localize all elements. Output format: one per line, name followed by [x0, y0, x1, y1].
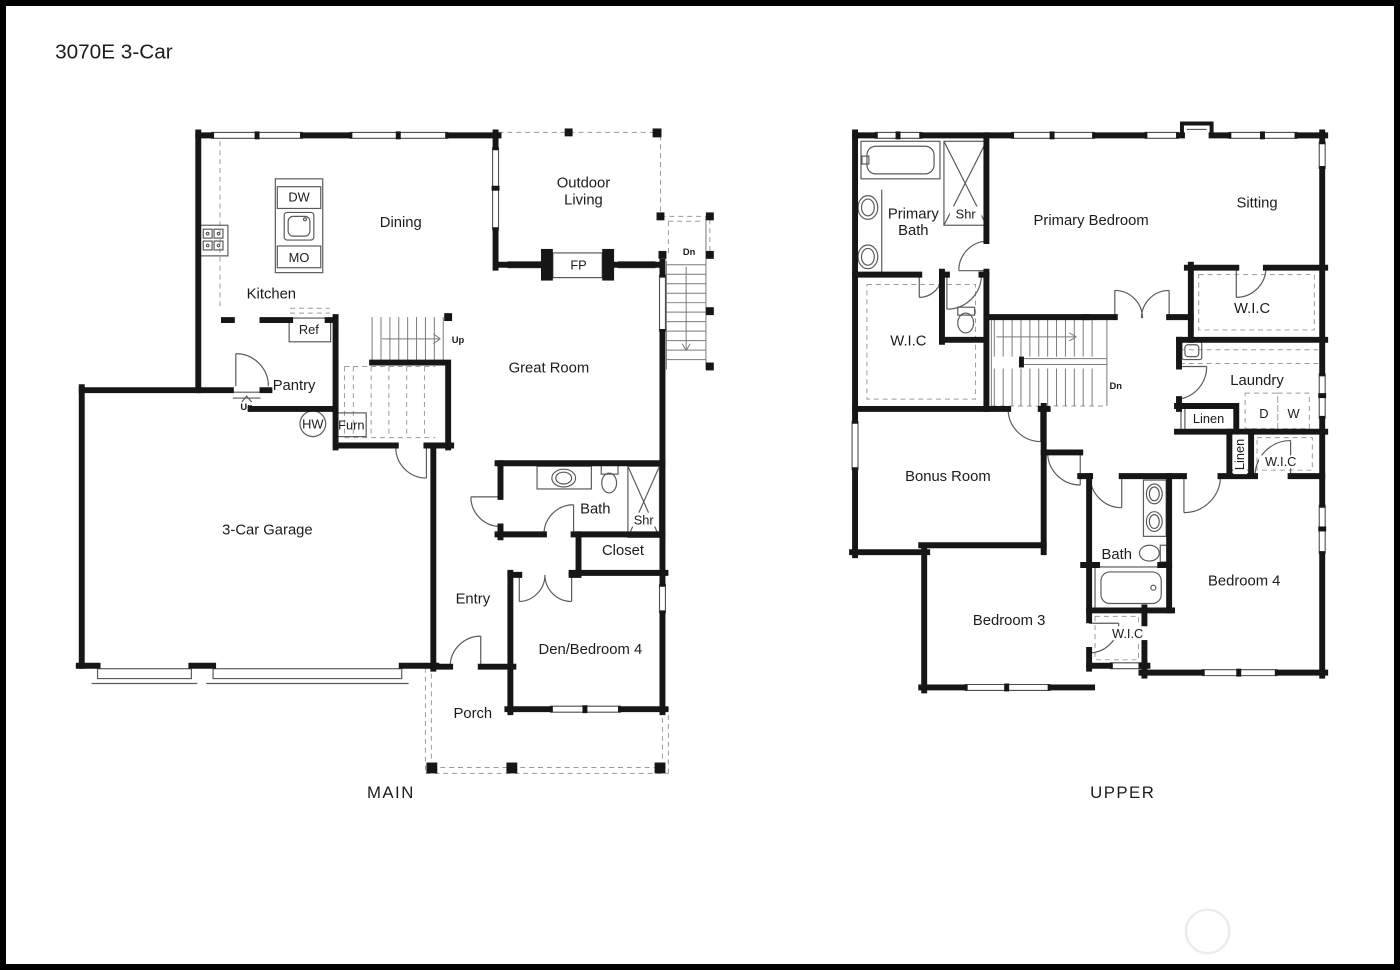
- stair-label-up-entry: Up: [240, 402, 253, 412]
- wic-sitting-door: [1236, 268, 1266, 298]
- room-label-dining: Dining: [380, 215, 422, 231]
- upper-stairs: [991, 317, 1107, 406]
- room-label-bonus-room: Bonus Room: [905, 469, 991, 485]
- caption-upper-floor: UPPER: [1090, 783, 1155, 802]
- stair-label-dn-exterior: Dn: [683, 247, 696, 257]
- garage-door-interior: [396, 447, 427, 478]
- main-floor: Dining Kitchen Outdoor Living FP Dn Grea…: [79, 128, 714, 802]
- fixture-label-mo: MO: [289, 250, 310, 265]
- main-posts: [255, 128, 714, 773]
- caption-main-floor: MAIN: [367, 783, 415, 802]
- fixture-label-shr-main: Shr: [634, 513, 655, 528]
- upper-floor: Primary Bath Shr Primary Bedroom Sitting…: [852, 124, 1326, 803]
- room-label-bedroom3: Bedroom 3: [973, 613, 1045, 629]
- room-label-garage: 3-Car Garage: [222, 522, 312, 538]
- room-label-laundry: Laundry: [1230, 373, 1284, 389]
- room-label-outdoor-living-line1: Outdoor: [557, 176, 611, 192]
- bath-inner-door: [544, 505, 574, 535]
- primary-bath-door: [959, 241, 987, 271]
- pantry-door: [236, 354, 269, 387]
- watermark-circle-icon: [1186, 910, 1229, 953]
- room-label-den: Den/Bedroom 4: [539, 642, 643, 658]
- room-label-wic-primary: W.I.C: [890, 334, 926, 350]
- fixture-label-linen-closet: Linen: [1232, 439, 1247, 470]
- garage-door-right: [213, 669, 402, 679]
- bedroom4-door: [1184, 476, 1221, 513]
- room-label-primary-bath-line2: Bath: [898, 223, 928, 239]
- fixture-label-washer: W: [1288, 406, 1301, 421]
- upper-labels: Primary Bath Shr Primary Bedroom Sitting…: [888, 195, 1303, 802]
- fixture-label-fireplace: FP: [570, 258, 586, 273]
- room-label-wic-bedroom3: W.I.C: [1112, 626, 1143, 641]
- garage-door-left: [98, 669, 192, 679]
- fixture-label-dryer: D: [1259, 406, 1268, 421]
- upper-fixtures: [858, 129, 1249, 608]
- room-label-closet: Closet: [602, 543, 644, 559]
- room-label-outdoor-living-line2: Living: [564, 193, 603, 209]
- floor-plan-drawing: Dining Kitchen Outdoor Living FP Dn Grea…: [6, 6, 1394, 964]
- stair-label-dn-upper: Dn: [1110, 381, 1123, 391]
- room-label-wic-bedroom4: W.I.C: [1265, 454, 1296, 469]
- room-label-sitting: Sitting: [1236, 195, 1277, 211]
- main-fixtures: [92, 179, 660, 684]
- wc-toilet-icon: [958, 307, 975, 315]
- bath-upper-door: [1090, 476, 1122, 508]
- room-label-kitchen: Kitchen: [247, 286, 296, 302]
- room-label-bath-upper: Bath: [1102, 547, 1132, 563]
- room-label-pantry: Pantry: [273, 378, 316, 394]
- bath-door: [471, 497, 501, 527]
- entry-steps: [233, 392, 261, 402]
- room-label-entry: Entry: [456, 592, 491, 608]
- main-dashed-outlines: [220, 132, 710, 773]
- room-label-great-room: Great Room: [509, 360, 590, 376]
- main-windows: [211, 132, 665, 712]
- room-label-bath-main: Bath: [580, 502, 610, 518]
- bonus-room-door: [1008, 409, 1041, 442]
- front-door: [450, 636, 481, 667]
- floor-plan-page: Dining Kitchen Outdoor Living FP Dn Grea…: [0, 0, 1400, 970]
- main-doors: [236, 354, 574, 667]
- stair-label-up-main: Up: [452, 335, 465, 345]
- plan-title: 3070E 3-Car: [55, 40, 173, 63]
- fixture-label-ref: Ref: [299, 322, 319, 337]
- wc-door: [947, 275, 982, 310]
- den-double-doors: [519, 575, 571, 602]
- laundry-door: [1179, 366, 1207, 399]
- wic-primary-door: [919, 275, 942, 298]
- fixture-label-furn: Furn: [338, 418, 364, 433]
- room-label-bedroom4: Bedroom 4: [1208, 574, 1280, 590]
- room-label-primary-bath-line1: Primary: [888, 206, 940, 222]
- room-label-wic-sitting: W.I.C: [1234, 301, 1270, 317]
- main-stairs: [372, 216, 706, 369]
- main-walls: [79, 132, 666, 712]
- room-label-primary-bedroom: Primary Bedroom: [1034, 213, 1149, 229]
- bedroom3-door: [1048, 452, 1081, 485]
- fixture-label-linen-hall: Linen: [1193, 411, 1224, 426]
- fixture-label-shr-upper: Shr: [956, 206, 977, 221]
- fixture-label-dw: DW: [288, 190, 310, 205]
- room-label-porch: Porch: [454, 706, 493, 722]
- primary-bedroom-double-doors: [1115, 290, 1169, 318]
- fixture-label-hw: HW: [302, 417, 324, 432]
